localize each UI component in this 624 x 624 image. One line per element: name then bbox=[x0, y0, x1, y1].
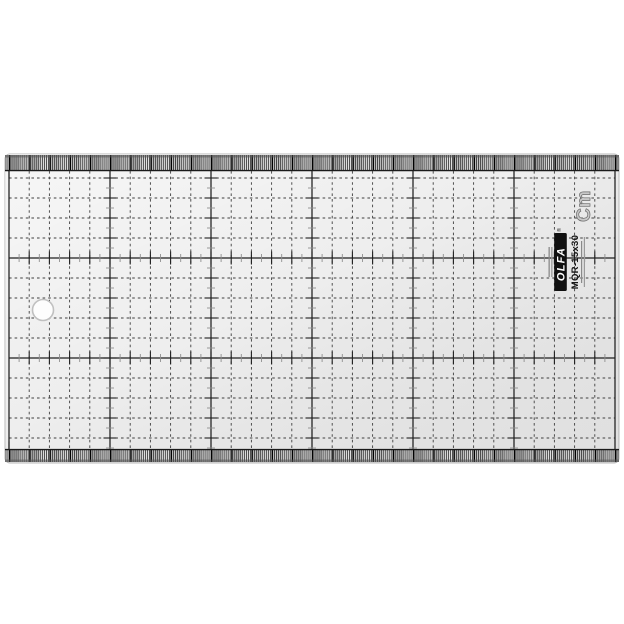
fine-print-line bbox=[549, 247, 550, 277]
hanging-hole bbox=[33, 300, 54, 321]
fine-print-line bbox=[551, 247, 552, 277]
registered-mark: ® bbox=[556, 228, 563, 232]
unit-label-text: Cm bbox=[574, 190, 595, 222]
product-photo: Cm OLFA ® MQR-15x30 bbox=[0, 0, 624, 624]
unit-label: Cm bbox=[574, 190, 595, 222]
quilting-ruler-photo: Cm OLFA ® MQR-15x30 bbox=[0, 0, 624, 624]
ruler: Cm OLFA ® MQR-15x30 bbox=[5, 154, 619, 463]
model-number: MQR-15x30 bbox=[570, 235, 581, 289]
fine-print-line bbox=[581, 241, 582, 283]
fine-print-line bbox=[584, 237, 585, 287]
top-edge-shade bbox=[5, 155, 619, 158]
olfa-logo-text: OLFA bbox=[555, 247, 567, 281]
bottom-edge-shade bbox=[5, 460, 619, 463]
